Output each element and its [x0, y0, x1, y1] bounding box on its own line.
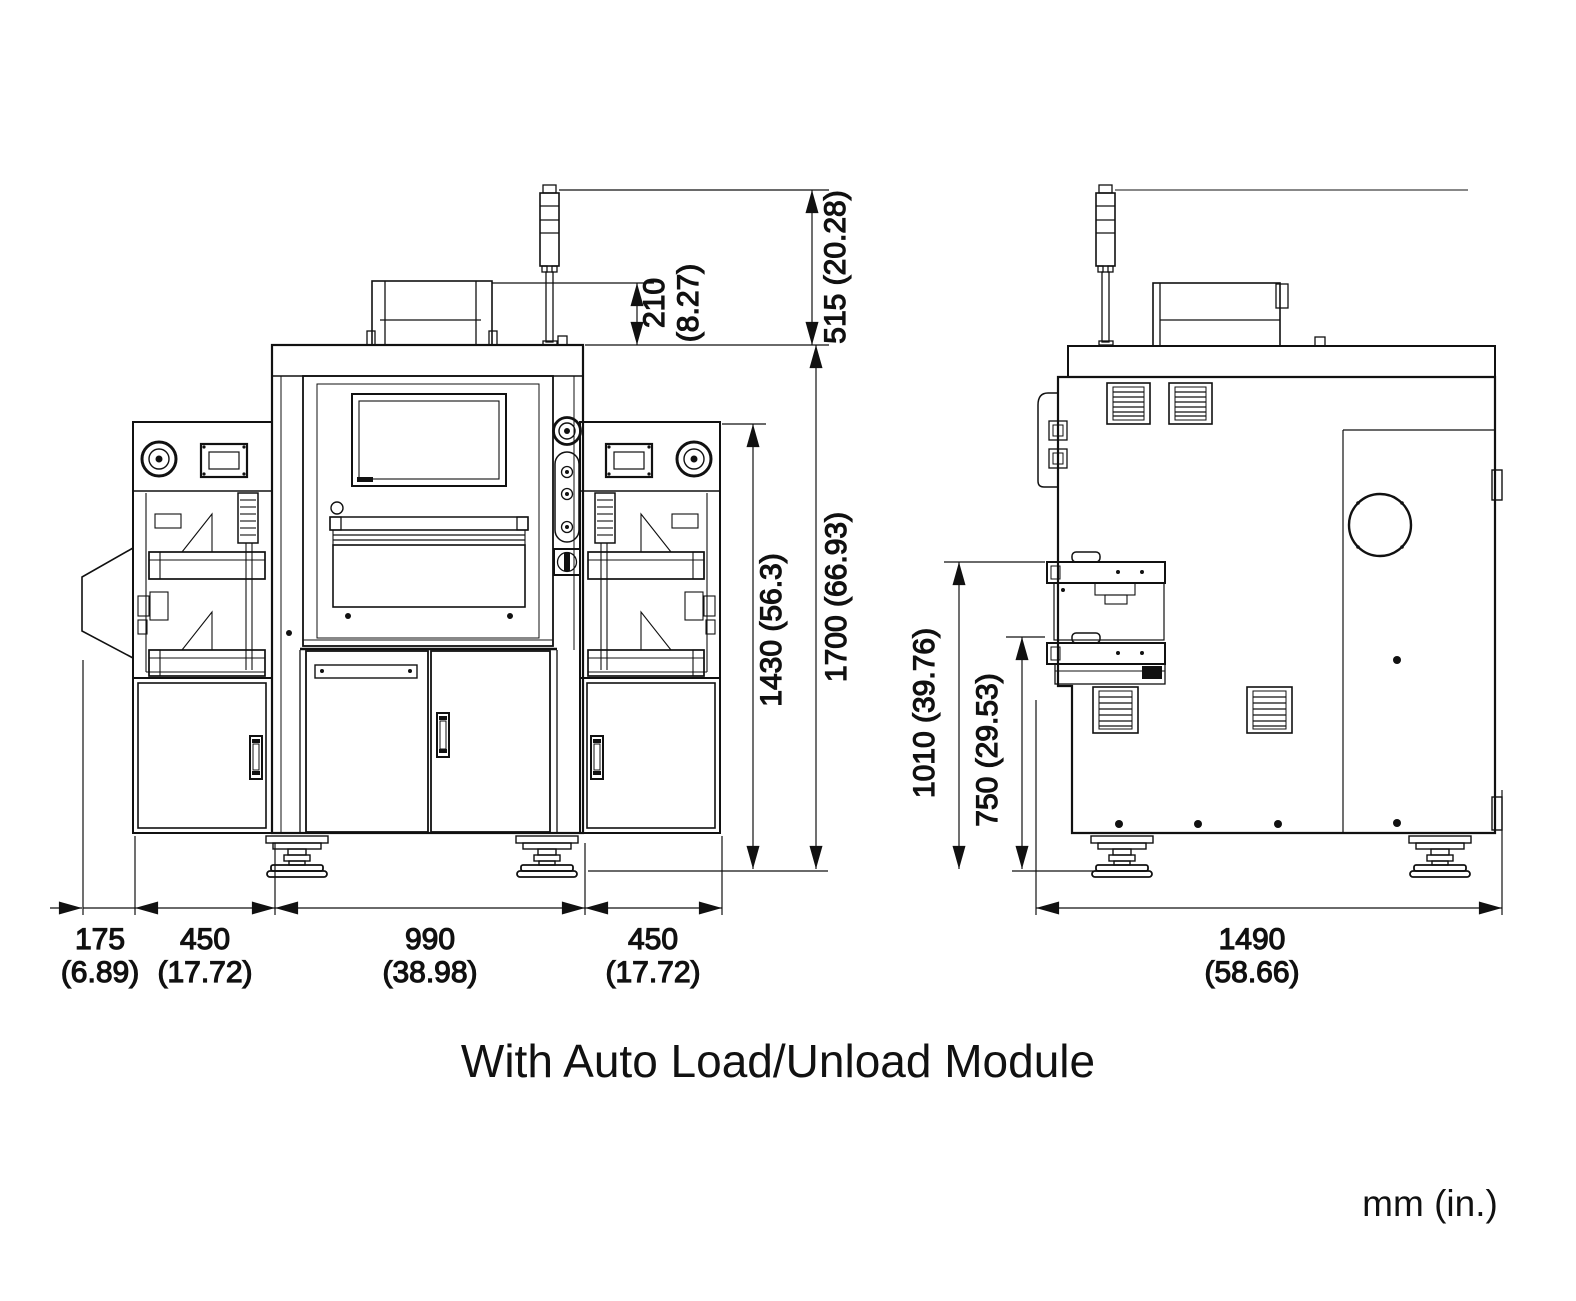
front-screen: [352, 394, 506, 486]
dim-chute-in: (6.89): [61, 956, 139, 989]
front-control-panel: [554, 418, 581, 576]
dim-center-in: (38.98): [382, 956, 477, 989]
emergency-stop-button-icon: [142, 442, 176, 476]
dim-left-module-mm: 450: [180, 923, 230, 956]
dim-lower-port-height: 750 (29.53): [971, 673, 1004, 826]
front-right-module: [580, 422, 720, 833]
module-cabinet-door: [138, 683, 266, 828]
door-handle-icon: [437, 713, 449, 757]
side-handle-icon: [1492, 470, 1502, 500]
module-mechanism: [588, 493, 715, 676]
fan-opening-icon: [1349, 494, 1411, 556]
front-left-chute: [82, 548, 133, 658]
technical-drawing: 515 (20.28) 210 (8.27) 1430 (56.3) 1700 …: [0, 0, 1576, 1301]
module-mechanism: [138, 493, 265, 676]
panel-buttons-icon: [562, 467, 573, 533]
side-signal-tower-icon: [1096, 185, 1115, 345]
side-roof-box: [1153, 283, 1325, 346]
front-left-module: [133, 422, 272, 833]
dim-right-module-in: (17.72): [605, 956, 700, 989]
dim-center-mm: 990: [405, 923, 455, 956]
dim-upper-port-height: 1010 (39.76): [908, 628, 941, 798]
vent-grille-icon: [1107, 383, 1150, 424]
drawing-title: With Auto Load/Unload Module: [461, 1035, 1095, 1087]
side-load-ports: [1047, 552, 1165, 684]
front-lower-doors: [300, 649, 557, 833]
dim-depth-mm: 1490: [1219, 923, 1286, 956]
dim-chute-mm: 175: [75, 923, 125, 956]
side-body: [1058, 346, 1502, 833]
vent-grille-icon: [1093, 687, 1138, 733]
dim-total-height: 1700 (66.93): [820, 512, 853, 682]
front-center-unit: [272, 345, 583, 833]
side-view: [1038, 185, 1502, 877]
module-display: [201, 444, 247, 477]
side-handle-icon: [1492, 797, 1502, 830]
module-cabinet-door: [587, 683, 715, 828]
front-keyhole: [331, 502, 343, 514]
vent-grille-icon: [1247, 687, 1292, 733]
dim-depth-in: (58.66): [1204, 956, 1299, 989]
dim-roof-box-mm: 210: [638, 278, 671, 328]
leveling-foot-icon: [516, 836, 578, 877]
front-roof-box: [367, 281, 497, 345]
module-display: [606, 444, 652, 477]
dimensions: 515 (20.28) 210 (8.27) 1430 (56.3) 1700 …: [50, 190, 1502, 989]
leveling-foot-icon: [1409, 836, 1471, 877]
door-handle-icon: [591, 736, 603, 779]
side-front-panel: [1038, 393, 1067, 487]
key-switch-icon: [554, 549, 580, 575]
vent-grille-icon: [1169, 383, 1212, 424]
dim-right-module-mm: 450: [628, 923, 678, 956]
emergency-stop-button-icon: [554, 418, 581, 445]
dim-module-height: 1430 (56.3): [755, 553, 788, 706]
units-note: mm (in.): [1362, 1183, 1498, 1224]
dim-roof-box-in: (8.27): [672, 264, 705, 342]
front-conveyor-slot: [330, 517, 528, 607]
front-signal-tower-icon: [540, 185, 567, 345]
door-handle-icon: [250, 736, 262, 779]
dim-tower-height: 515 (20.28): [819, 190, 852, 343]
emergency-stop-button-icon: [677, 442, 711, 476]
dim-left-module-in: (17.72): [157, 956, 252, 989]
front-view: [82, 185, 720, 877]
